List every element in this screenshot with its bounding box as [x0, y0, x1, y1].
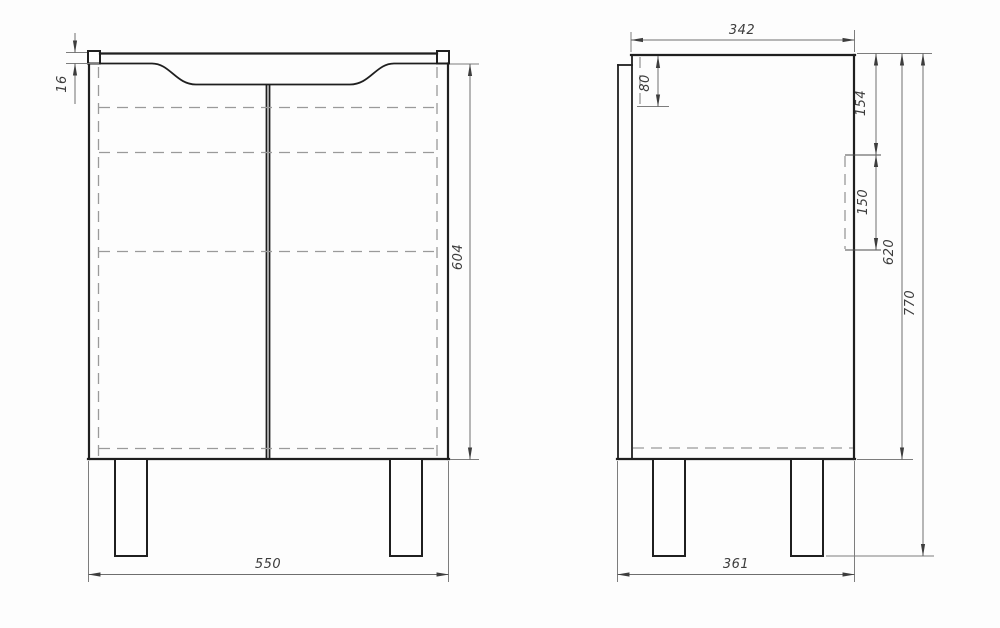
dim-side-carcass-height-label: 620 — [882, 239, 897, 265]
side-front-leg — [653, 459, 685, 556]
dim-side-apron-drop: 80 — [637, 56, 669, 107]
dim-side-total-height: 770 — [826, 54, 934, 557]
front-top-right-tab — [437, 51, 449, 64]
dim-side-apron-drop-label: 80 — [638, 74, 653, 92]
dim-side-depth-top-label: 342 — [729, 23, 755, 38]
dim-side-upper-offset-label: 154 — [854, 90, 869, 116]
front-top-left-tab — [88, 51, 100, 64]
front-sink-apron-curve — [100, 64, 437, 85]
dim-side-upper-offset: 154 — [854, 54, 876, 156]
dim-side-depth-top: 342 — [631, 23, 855, 52]
side-view: 342 80 154 150 620 — [617, 23, 934, 582]
dim-side-cutout-height: 150 — [856, 155, 876, 250]
front-view: 16 604 550 — [55, 33, 479, 582]
front-left-leg — [115, 459, 147, 556]
dim-side-depth-bottom-label: 361 — [723, 557, 749, 572]
dim-front-top-thickness-label: 16 — [55, 75, 70, 93]
drawing-canvas: 16 604 550 — [0, 0, 1000, 628]
dim-front-top-thickness: 16 — [55, 33, 99, 104]
side-back-leg — [791, 459, 823, 556]
dim-side-total-height-label: 770 — [903, 290, 918, 316]
dim-side-cutout-height-label: 150 — [856, 189, 871, 215]
dim-front-height-label: 604 — [451, 244, 466, 270]
cabinet-technical-drawing: 16 604 550 — [0, 0, 1000, 628]
dim-front-width-label: 550 — [255, 557, 281, 572]
dim-front-height: 604 — [450, 64, 479, 460]
front-right-leg — [390, 459, 422, 556]
